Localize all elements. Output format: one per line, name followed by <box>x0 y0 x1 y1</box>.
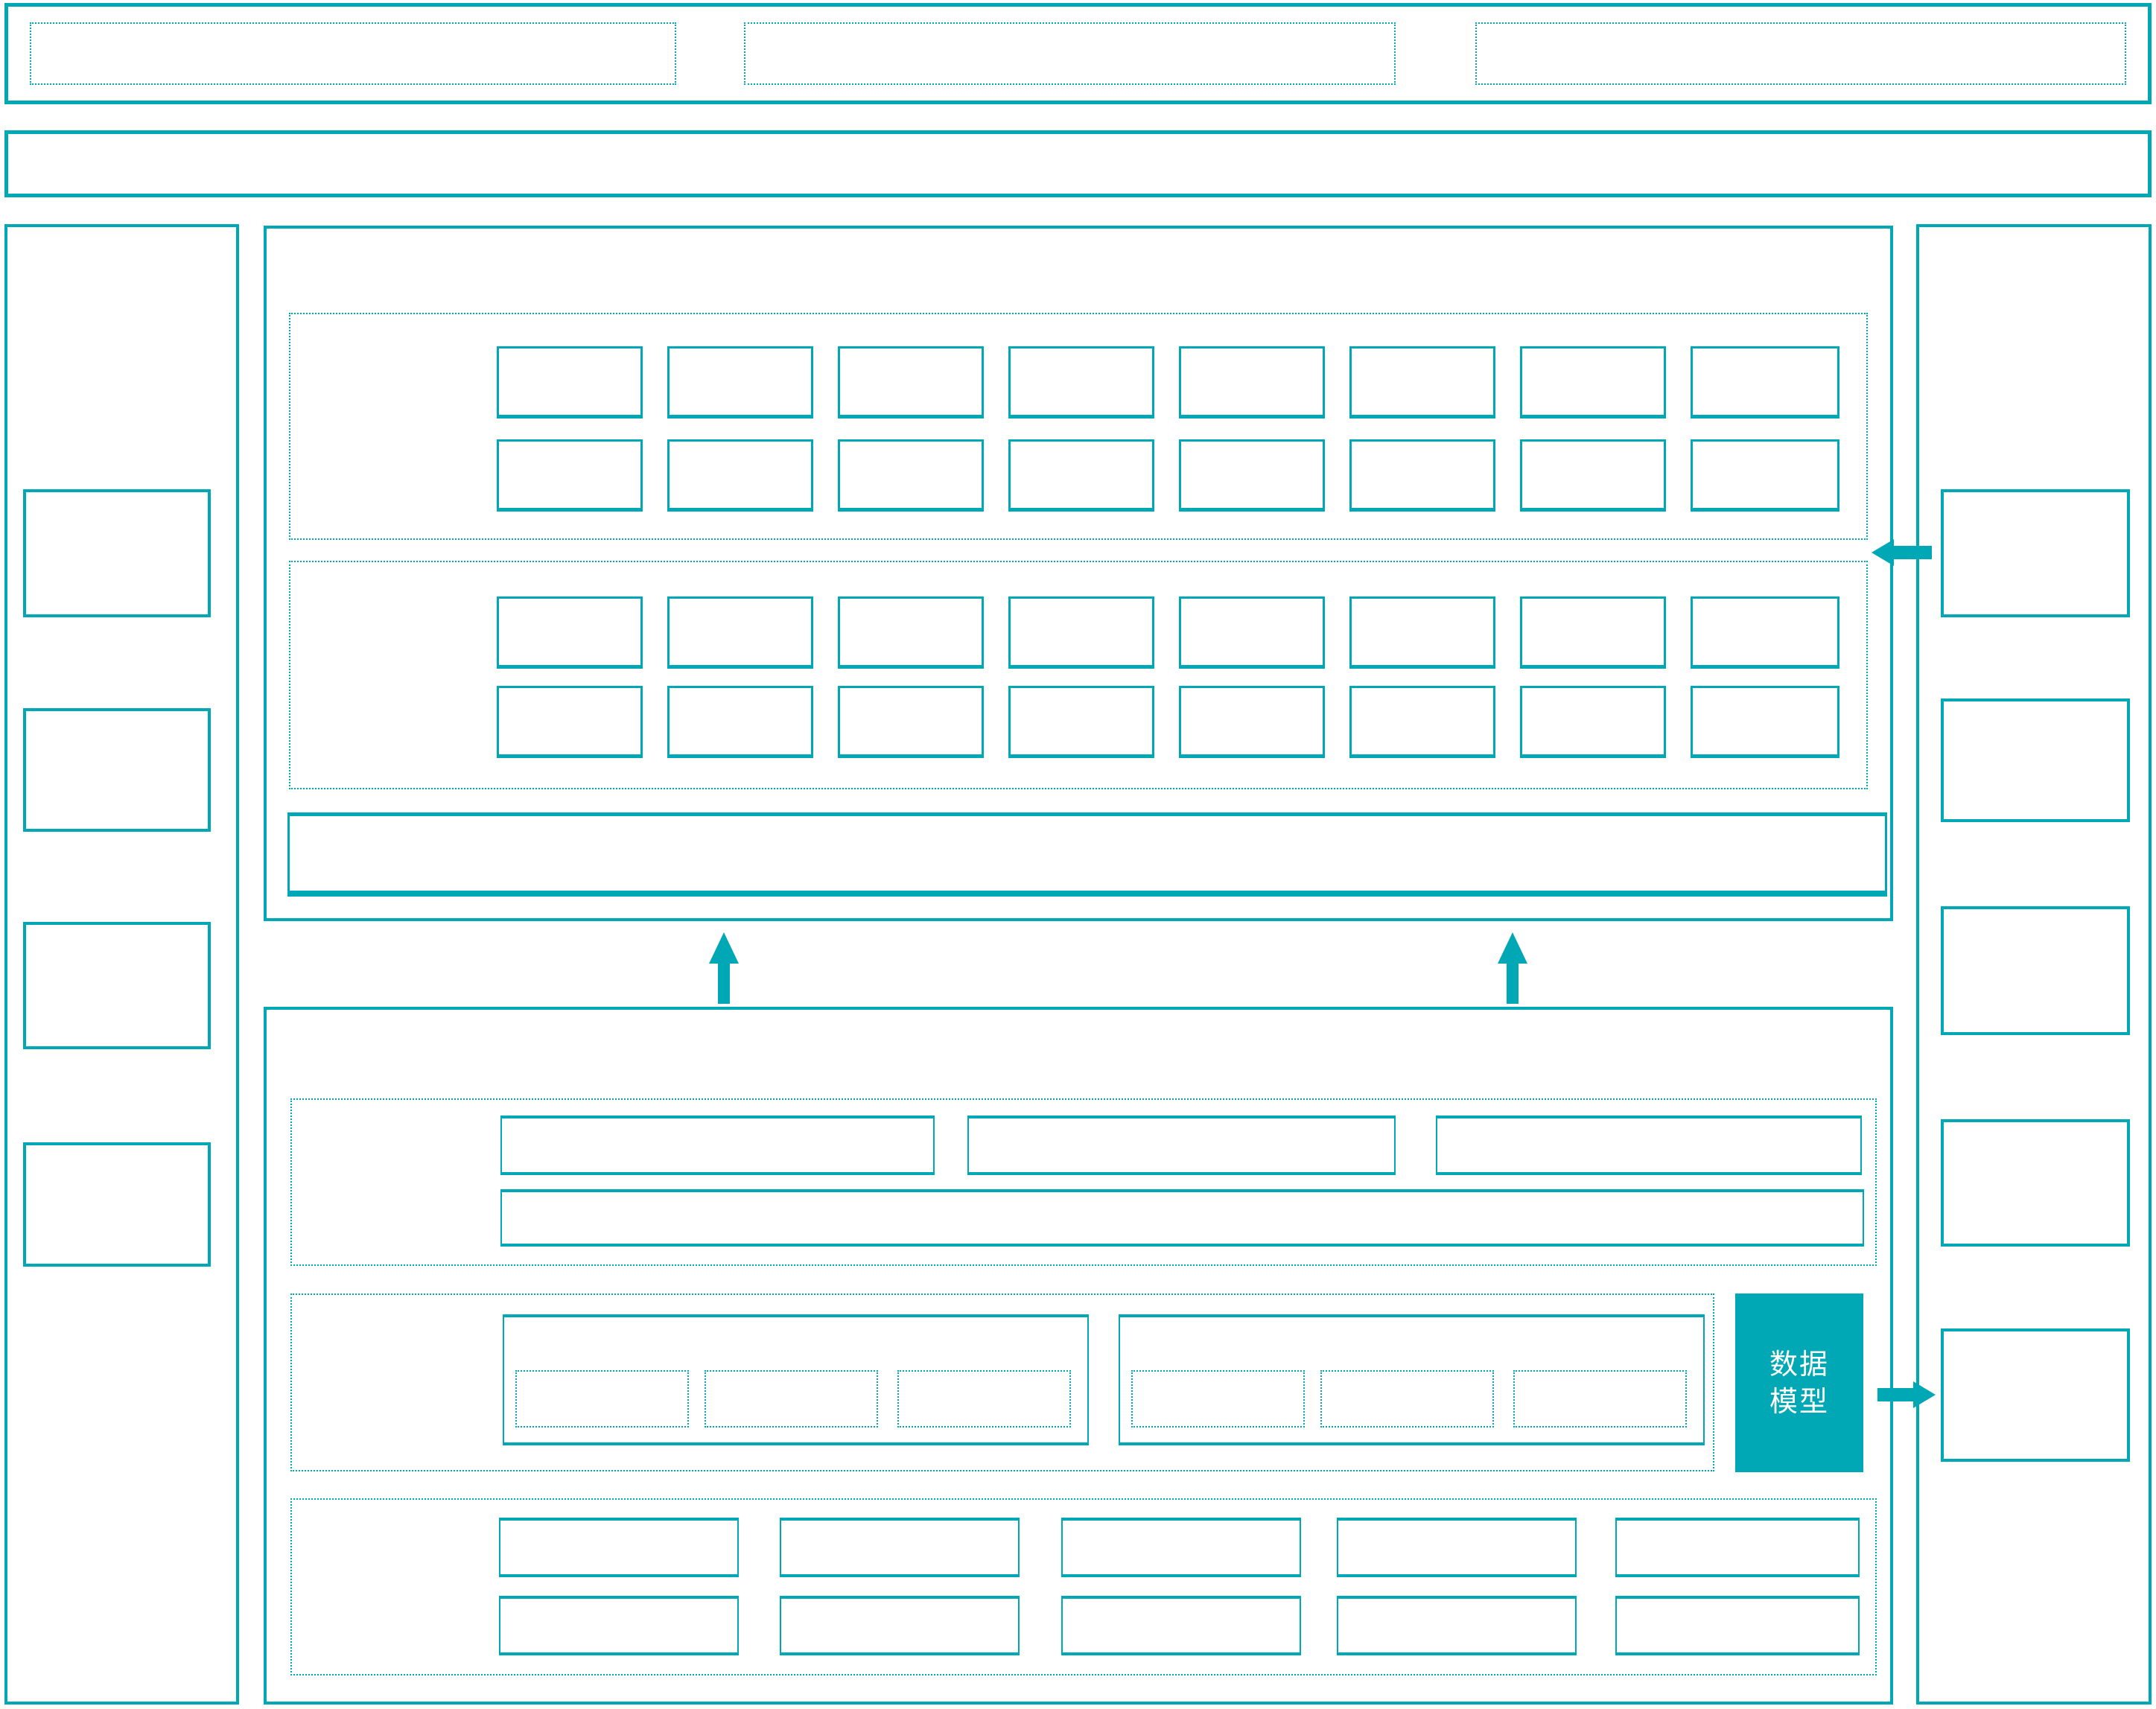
left-panel <box>4 224 239 1705</box>
module-box <box>838 346 984 419</box>
module-box <box>1008 346 1154 419</box>
module-box <box>1008 596 1154 669</box>
module-box <box>1008 686 1154 758</box>
module-box <box>667 439 813 512</box>
storage-sub-box <box>705 1370 878 1428</box>
storage-sub-box <box>897 1370 1071 1428</box>
module-box <box>1349 596 1495 669</box>
top-bar-slot-1 <box>30 22 676 85</box>
module-box <box>1520 439 1666 512</box>
module-box <box>838 596 984 669</box>
base-box <box>1337 1596 1577 1655</box>
data-model-box: 数据 模型 <box>1735 1293 1863 1472</box>
base-box <box>780 1596 1020 1655</box>
upper-main-panel <box>264 226 1893 921</box>
top-bar-slot-3 <box>1475 22 2126 85</box>
module-box <box>1691 686 1839 758</box>
module-box <box>1179 346 1325 419</box>
service-group <box>290 1098 1877 1266</box>
service-box <box>1436 1116 1862 1175</box>
storage-container-1 <box>503 1314 1089 1445</box>
module-box <box>497 686 643 758</box>
module-box <box>1349 346 1495 419</box>
module-box <box>497 346 643 419</box>
base-box <box>1061 1518 1301 1577</box>
module-box <box>1008 439 1154 512</box>
base-box <box>1615 1518 1860 1577</box>
right-panel-box-5 <box>1941 1328 2130 1462</box>
right-panel-box-3 <box>1941 906 2130 1035</box>
service-box <box>500 1116 935 1175</box>
module-box <box>1520 686 1666 758</box>
base-group <box>290 1498 1877 1675</box>
module-box <box>838 686 984 758</box>
base-box <box>499 1518 739 1577</box>
left-panel-box-4 <box>23 1142 211 1267</box>
data-model-label-line1: 数据 <box>1769 1346 1829 1383</box>
module-group-a <box>289 313 1868 540</box>
module-box <box>1179 686 1325 758</box>
lower-main-panel: 数据 模型 <box>264 1007 1893 1705</box>
data-model-label-line2: 模型 <box>1769 1383 1829 1420</box>
module-box <box>1691 596 1839 669</box>
storage-group <box>290 1293 1714 1471</box>
module-box <box>667 346 813 419</box>
module-box <box>667 686 813 758</box>
right-panel-box-2 <box>1941 698 2130 822</box>
module-box <box>1520 596 1666 669</box>
top-bar <box>4 3 2152 104</box>
module-box <box>1349 686 1495 758</box>
right-panel-box-1 <box>1941 489 2130 617</box>
storage-sub-box <box>1513 1370 1687 1428</box>
upper-divider-box <box>287 812 1887 897</box>
module-box <box>1691 439 1839 512</box>
header-bar <box>4 130 2152 197</box>
storage-sub-box <box>515 1370 689 1428</box>
left-panel-box-2 <box>23 708 211 832</box>
module-box <box>1179 439 1325 512</box>
module-box <box>1520 346 1666 419</box>
service-box <box>967 1116 1396 1175</box>
storage-sub-box <box>1131 1370 1305 1428</box>
base-box <box>499 1596 739 1655</box>
module-box <box>1179 596 1325 669</box>
base-box <box>1061 1596 1301 1655</box>
module-box <box>1349 439 1495 512</box>
right-panel-box-4 <box>1941 1119 2130 1247</box>
top-bar-slot-2 <box>744 22 1396 85</box>
storage-container-2 <box>1119 1314 1705 1445</box>
module-box <box>667 596 813 669</box>
left-panel-box-1 <box>23 489 211 617</box>
base-box <box>1337 1518 1577 1577</box>
storage-sub-box <box>1320 1370 1494 1428</box>
module-box <box>497 596 643 669</box>
right-panel <box>1916 224 2152 1705</box>
left-panel-box-3 <box>23 922 211 1049</box>
diagram-canvas: 数据 模型 <box>0 0 2156 1709</box>
base-box <box>1615 1596 1860 1655</box>
base-box <box>780 1518 1020 1577</box>
module-box <box>497 439 643 512</box>
service-wide-box <box>500 1189 1864 1247</box>
module-box <box>1691 346 1839 419</box>
module-group-b <box>289 561 1868 789</box>
module-box <box>838 439 984 512</box>
